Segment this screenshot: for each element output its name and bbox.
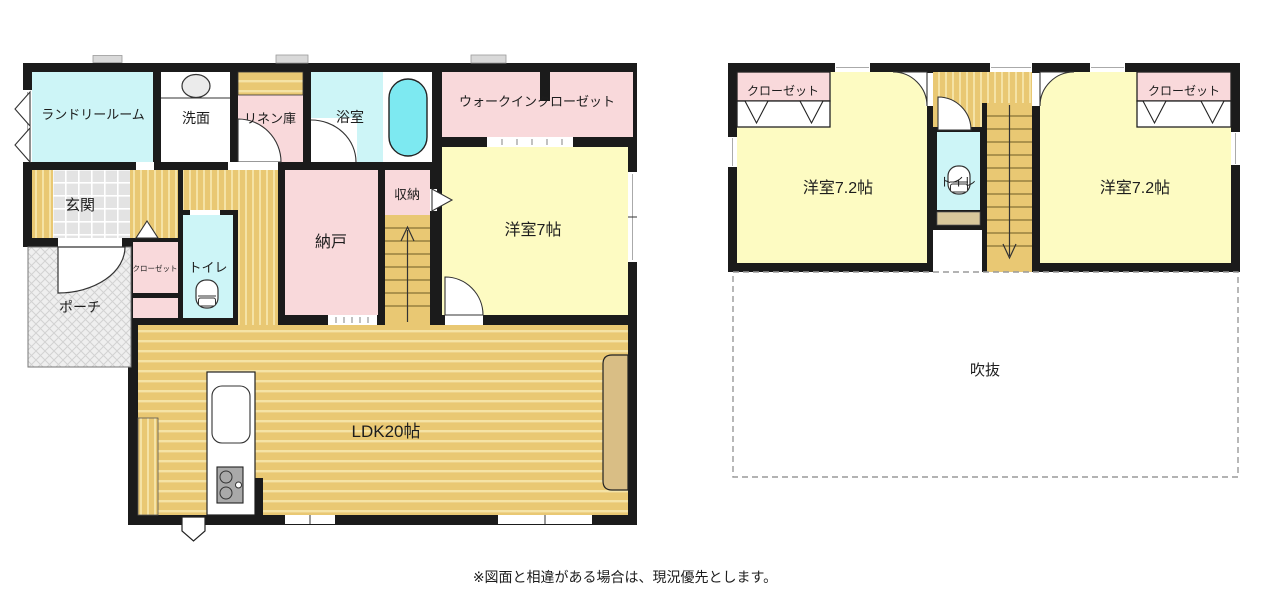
label-ldk: LDK20帖 — [352, 422, 421, 441]
opening-hall-bath — [228, 162, 278, 170]
toilet-icon-1f — [196, 280, 218, 308]
stove-icon — [217, 467, 243, 503]
label-bedroom2f-right: 洋室7.2帖 — [1100, 179, 1170, 197]
linen-shelf — [238, 72, 303, 95]
window-2f-east — [1231, 132, 1240, 165]
opening-2f-bottom-white — [933, 263, 982, 272]
closet2f-left — [737, 72, 830, 127]
window-sill-north-3 — [471, 55, 506, 63]
sink-icon — [182, 75, 210, 98]
floorplan-svg: ランドリールーム 洗面 リネン庫 浴室 ウォークインクローゼット 洋室7帖 収納… — [0, 0, 1261, 610]
label-walk-in-closet: ウォークインクローゼット — [459, 94, 615, 109]
bathtub-icon — [389, 79, 427, 156]
ldk-step-strip — [138, 418, 158, 515]
window-bedroom7-east — [628, 172, 637, 262]
window-sill-north-2 — [276, 55, 308, 63]
door-gap-entrance — [58, 238, 122, 247]
door-gap-bedroom7 — [445, 315, 483, 325]
label-bedroom7: 洋室7帖 — [505, 221, 562, 239]
floorplan-canvas: ランドリールーム 洗面 リネン庫 浴室 ウォークインクローゼット 洋室7帖 収納… — [0, 0, 1261, 610]
kitchen-wall-stub — [255, 478, 263, 515]
floor2-plan: クローゼット クローゼット 洋室7.2帖 洋室7.2帖 トイレ 吹抜 — [728, 63, 1240, 477]
door-ldk-south — [182, 517, 205, 541]
window-2f-west — [728, 137, 737, 167]
label-void: 吹抜 — [970, 362, 1000, 379]
label-linen: リネン庫 — [244, 111, 296, 126]
label-nando: 納戸 — [315, 233, 347, 251]
hall-west — [130, 170, 178, 238]
label-shuno: 収納 — [394, 187, 420, 202]
stairs-1f — [385, 215, 430, 325]
hall-to-ldk — [238, 210, 278, 325]
kitchen-island — [207, 372, 255, 515]
label-bathroom: 浴室 — [336, 109, 364, 125]
void-under-stairs — [933, 230, 982, 263]
label-toilet2f: トイレ — [940, 175, 976, 189]
door-gap-toilet1f — [190, 210, 220, 215]
window-laundry-west — [15, 90, 32, 162]
stairs-2f — [987, 103, 1032, 263]
opening-2f-bottom-stairs — [987, 263, 1032, 272]
casement-window-icon — [15, 128, 30, 162]
window-2f-north-1 — [835, 63, 870, 72]
label-bedroom2f-left: 洋室7.2帖 — [803, 179, 873, 197]
hall-north — [183, 170, 278, 210]
window-ldk-south-2 — [498, 515, 592, 524]
casement-window-icon — [15, 92, 30, 126]
entrance-step — [32, 170, 53, 238]
label-laundry: ランドリールーム — [41, 107, 145, 122]
window-ldk-south-1 — [285, 515, 335, 524]
door-gap-bedroom2f-right — [1032, 73, 1040, 106]
floor1-plan: ランドリールーム 洗面 リネン庫 浴室 ウォークインクローゼット 洋室7帖 収納… — [15, 55, 637, 541]
label-closet2f-left: クローゼット — [747, 84, 819, 98]
disclaimer-caption: ※図面と相違がある場合は、現況優先とします。 — [473, 569, 777, 585]
sliding-door-wic — [487, 137, 573, 147]
label-closet1f: クローゼット — [133, 263, 178, 273]
toilet2f-shelf — [937, 212, 980, 225]
label-entrance: 玄関 — [65, 197, 95, 214]
window-sill-north-1 — [93, 56, 122, 63]
kitchen-sink-icon — [212, 386, 250, 443]
label-closet2f-right: クローゼット — [1148, 84, 1220, 98]
label-toilet1f: トイレ — [188, 260, 227, 275]
closet2f-right — [1137, 72, 1231, 127]
label-washroom: 洗面 — [182, 110, 210, 126]
ldk-counter — [603, 355, 628, 490]
window-2f-north-2 — [990, 63, 1032, 72]
opening-hall-washroom — [136, 162, 154, 170]
window-2f-north-3 — [1090, 63, 1125, 72]
sliding-door-nando — [328, 315, 377, 325]
room-closet1f-lower — [133, 298, 178, 318]
label-porch: ポーチ — [59, 299, 101, 315]
